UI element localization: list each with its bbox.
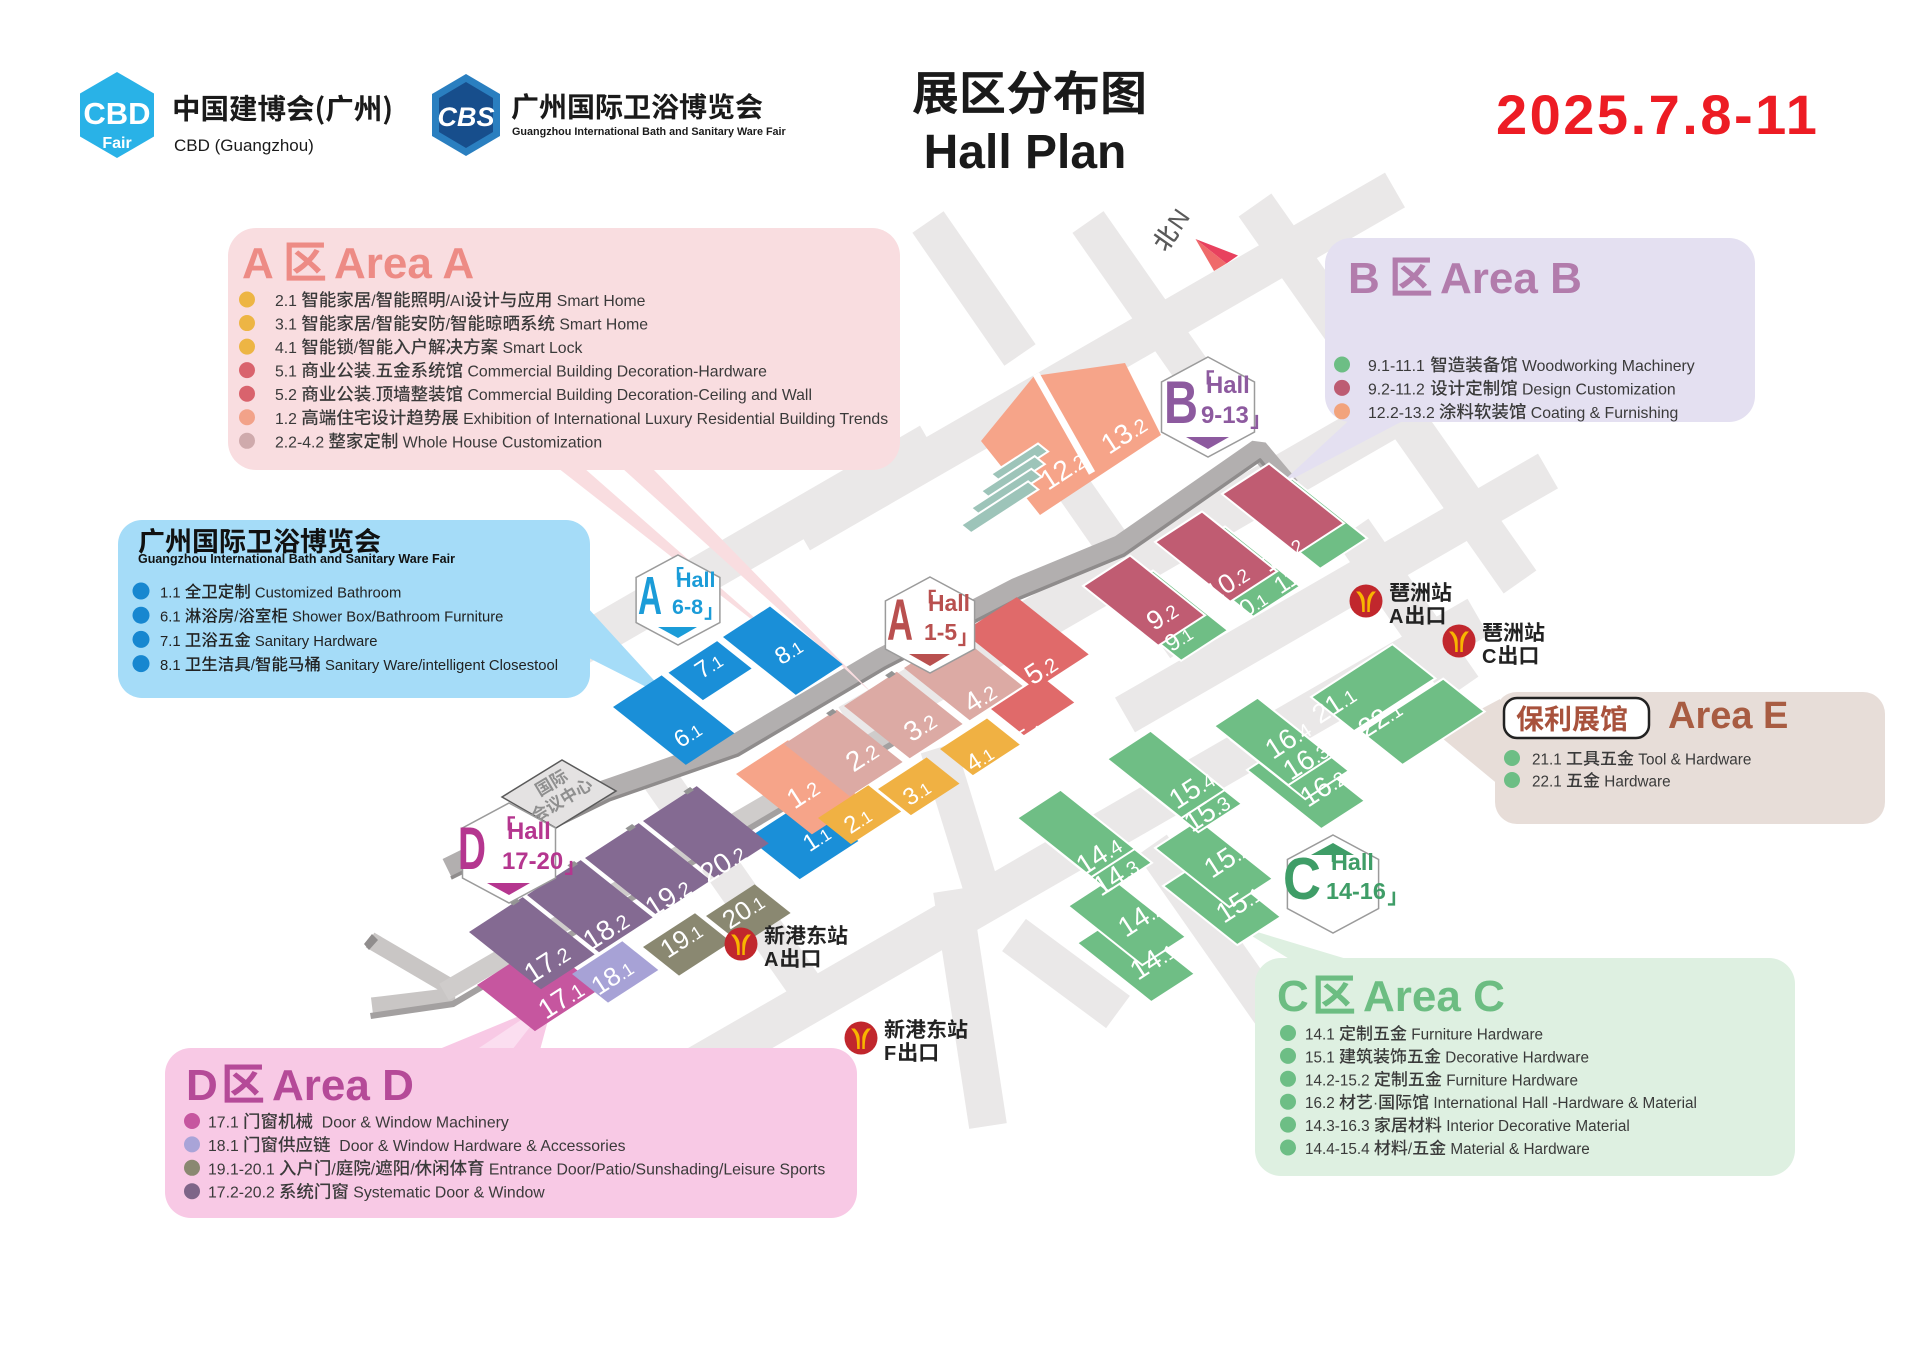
svg-text:Commercial Building Decoration: Commercial Building Decoration-Ceiling a… <box>468 387 812 404</box>
svg-text:Sanitary Ware/intelligent Clos: Sanitary Ware/intelligent Closestool <box>325 658 558 674</box>
svg-text:Area E: Area E <box>1668 695 1788 737</box>
svg-text:/: / <box>410 1161 415 1178</box>
svg-text:Interior Decorative Material: Interior Decorative Material <box>1446 1118 1630 1135</box>
svg-text:Area D: Area D <box>272 1061 414 1110</box>
svg-text:12.2-13.2: 12.2-13.2 <box>1368 405 1435 422</box>
svg-text:9.2-11.2: 9.2-11.2 <box>1368 381 1425 398</box>
svg-text:CBD (Guangzhou): CBD (Guangzhou) <box>174 136 314 155</box>
svg-text:A: A <box>638 566 662 626</box>
svg-text:Area C: Area C <box>1363 972 1505 1021</box>
svg-text:/: / <box>371 317 376 334</box>
svg-text:Entrance Door/Patio/Sunshading: Entrance Door/Patio/Sunshading/Leisure S… <box>489 1161 825 1178</box>
svg-text:Fair: Fair <box>102 135 131 152</box>
svg-text:1.2: 1.2 <box>275 411 297 428</box>
svg-text:Hardware: Hardware <box>1604 774 1670 791</box>
svg-text:5.1: 5.1 <box>275 364 297 381</box>
svg-text:Tool & Hardware: Tool & Hardware <box>1638 752 1751 769</box>
svg-text:Hall: Hall <box>1331 849 1374 875</box>
svg-text:International Hall -Hardware &: International Hall -Hardware & Material <box>1433 1095 1697 1112</box>
svg-text:14.3-16.3: 14.3-16.3 <box>1305 1118 1370 1135</box>
svg-text:B: B <box>1348 254 1380 303</box>
svg-text:Hall: Hall <box>507 818 551 845</box>
svg-text:Area B: Area B <box>1440 254 1582 303</box>
svg-text:C: C <box>1482 646 1496 668</box>
svg-text:Whole House Customization: Whole House Customization <box>403 434 602 451</box>
svg-text:.: . <box>371 387 375 404</box>
svg-text:17.1: 17.1 <box>208 1115 239 1132</box>
svg-text:1-5: 1-5 <box>924 619 957 645</box>
svg-text:Furniture Hardware: Furniture Hardware <box>1446 1072 1578 1089</box>
svg-text:C: C <box>1283 846 1321 912</box>
svg-text:15.1: 15.1 <box>1305 1049 1335 1066</box>
svg-text:CBS: CBS <box>437 102 494 132</box>
svg-text:14.2-15.2: 14.2-15.2 <box>1305 1072 1370 1089</box>
svg-text:Guangzhou International Bath a: Guangzhou International Bath and Sanitar… <box>512 126 787 138</box>
svg-text:D: D <box>186 1061 218 1110</box>
svg-text:19.1-20.1: 19.1-20.1 <box>208 1161 275 1178</box>
svg-text:2.1: 2.1 <box>275 293 297 310</box>
svg-text:14.1: 14.1 <box>1305 1027 1335 1044</box>
svg-text:Hall: Hall <box>676 568 715 592</box>
svg-text:/: / <box>331 1161 336 1178</box>
svg-text:Hall Plan: Hall Plan <box>924 126 1127 179</box>
svg-text:18.1: 18.1 <box>208 1138 239 1155</box>
svg-text:Coating & Furnishing: Coating & Furnishing <box>1531 405 1679 422</box>
svg-text:7.1: 7.1 <box>160 634 181 650</box>
svg-text:Decorative Hardware: Decorative Hardware <box>1445 1049 1589 1066</box>
svg-text:Furniture Hardware: Furniture Hardware <box>1411 1027 1543 1044</box>
svg-text:·: · <box>1373 1095 1378 1112</box>
svg-text:B: B <box>1164 369 1198 436</box>
svg-text:16.2: 16.2 <box>1305 1095 1335 1112</box>
svg-text:F: F <box>884 1043 896 1065</box>
svg-text:/: / <box>446 317 451 334</box>
svg-text:9-13: 9-13 <box>1201 402 1249 429</box>
svg-text:6-8: 6-8 <box>672 595 703 619</box>
svg-text:Guangzhou International Bath a: Guangzhou International Bath and Sanitar… <box>138 552 455 566</box>
svg-text:Door & Window Machinery: Door & Window Machinery <box>322 1115 509 1132</box>
svg-text:Door & Window Hardware & Acces: Door & Window Hardware & Accessories <box>339 1138 625 1155</box>
svg-text:2.2-4.2: 2.2-4.2 <box>275 434 324 451</box>
svg-text:1.1: 1.1 <box>160 586 181 602</box>
svg-text:Hall: Hall <box>928 590 970 616</box>
svg-text:Woodworking Machinery: Woodworking Machinery <box>1522 358 1695 375</box>
svg-text:Exhibition of International Lu: Exhibition of International Luxury Resid… <box>463 411 888 428</box>
svg-text:17.2-20.2: 17.2-20.2 <box>208 1185 275 1202</box>
svg-text:A: A <box>242 239 274 288</box>
svg-text:Shower Box/Bathroom Furniture: Shower Box/Bathroom Furniture <box>292 610 503 626</box>
svg-text:6.1: 6.1 <box>160 610 181 626</box>
svg-text:.: . <box>371 364 375 381</box>
svg-text:21.1: 21.1 <box>1532 752 1562 769</box>
svg-text:Material & Hardware: Material & Hardware <box>1450 1141 1589 1158</box>
svg-text:C: C <box>1277 972 1309 1021</box>
svg-text:Smart Home: Smart Home <box>559 317 648 334</box>
svg-text:/AI: /AI <box>446 293 465 310</box>
svg-text:/: / <box>1408 1141 1413 1158</box>
svg-text:/: / <box>371 293 376 310</box>
svg-text:5.2: 5.2 <box>275 387 297 404</box>
svg-text:A: A <box>1389 606 1403 628</box>
svg-text:D: D <box>458 815 486 882</box>
svg-text:8.1: 8.1 <box>160 658 181 674</box>
svg-text:4.1: 4.1 <box>275 340 297 357</box>
svg-text:Commercial Building Decoration: Commercial Building Decoration-Hardware <box>468 364 768 381</box>
svg-text:22.1: 22.1 <box>1532 774 1562 791</box>
svg-text:Area A: Area A <box>334 239 474 288</box>
svg-text:A: A <box>764 949 778 971</box>
svg-text:14.4-15.4: 14.4-15.4 <box>1305 1141 1370 1158</box>
svg-text:CBD: CBD <box>83 96 150 131</box>
svg-text:Sanitary Hardware: Sanitary Hardware <box>255 634 378 650</box>
svg-text:14-16: 14-16 <box>1326 878 1386 904</box>
svg-text:9.1-11.1: 9.1-11.1 <box>1368 358 1425 375</box>
svg-text:2025.7.8-11: 2025.7.8-11 <box>1496 83 1819 146</box>
svg-text:Customized Bathroom: Customized Bathroom <box>255 586 401 602</box>
svg-text:Smart Home: Smart Home <box>557 293 646 310</box>
svg-text:17-20: 17-20 <box>502 848 563 875</box>
svg-text:Design Customization: Design Customization <box>1522 381 1676 398</box>
svg-text:Systematic Door & Window: Systematic Door & Window <box>353 1185 545 1202</box>
svg-text:Hall: Hall <box>1206 372 1250 399</box>
svg-text:/: / <box>371 1161 376 1178</box>
svg-text:/: / <box>354 340 359 357</box>
svg-text:Smart Lock: Smart Lock <box>503 340 583 357</box>
svg-text:3.1: 3.1 <box>275 317 297 334</box>
svg-text:A: A <box>887 588 913 653</box>
